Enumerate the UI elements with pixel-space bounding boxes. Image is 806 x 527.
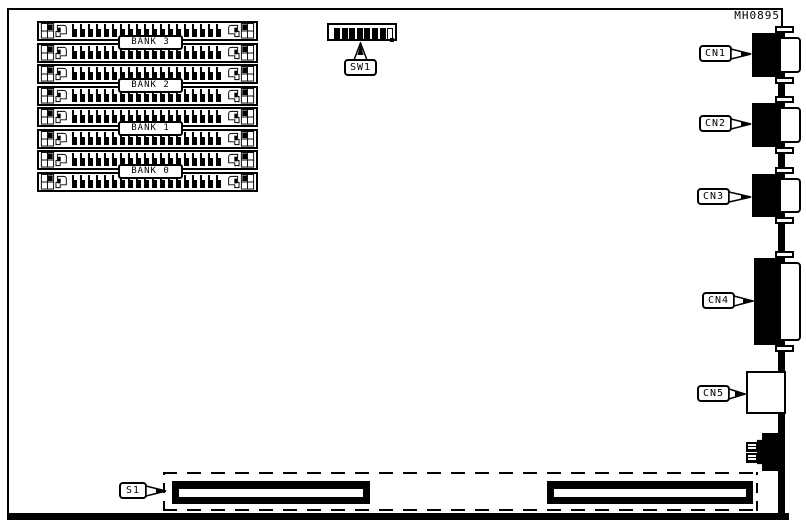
simm-clip-icon — [224, 131, 255, 147]
simm-pin-teeth — [72, 51, 223, 59]
simm-clip-icon — [40, 109, 71, 125]
simm-clip-icon — [224, 174, 255, 190]
dip-switch-position-5 — [364, 28, 370, 39]
simm-clip-icon — [40, 66, 71, 82]
dip-switch-position-2 — [342, 28, 348, 39]
bank-label: BANK 3 — [118, 35, 183, 50]
connector-cn2-shell — [779, 107, 801, 143]
dip-switch-position-1 — [334, 28, 340, 39]
connector-bottom-right-tab — [746, 453, 758, 463]
cn3-pointer-icon — [728, 191, 752, 203]
dip-switch-position-8 — [387, 28, 393, 40]
bank-label: BANK 0 — [118, 164, 183, 179]
connector-cn3-body — [752, 174, 779, 217]
dip-switch-position-7 — [380, 28, 386, 39]
figure-id: MH0895 — [667, 9, 780, 22]
connector-cn3-mount-tab — [775, 217, 794, 224]
board-diagram: MH0895 BANK 3BANK 2BANK 1BANK 0 SW1 CN1C… — [0, 0, 806, 527]
connector-cn5-body — [746, 371, 786, 414]
dip-switch-position-3 — [349, 28, 355, 39]
cn5-pointer-icon — [728, 388, 746, 400]
connector-cn3-shell — [779, 178, 801, 213]
cn5-label: CN5 — [697, 385, 730, 402]
cn1-label: CN1 — [699, 45, 732, 62]
simm-clip-icon — [224, 88, 255, 104]
board-edge-right — [781, 8, 783, 28]
connector-cn4-mount-tab — [775, 251, 794, 258]
simm-clip-icon — [224, 66, 255, 82]
s1-edge-connector-segment — [547, 481, 753, 504]
dip-switch-position-4 — [357, 28, 363, 39]
simm-clip-icon — [224, 45, 255, 61]
connector-cn1-mount-tab — [775, 77, 794, 84]
s1-dashed-border — [756, 472, 758, 511]
connector-bottom-right-body — [757, 433, 785, 471]
simm-clip-icon — [40, 174, 71, 190]
s1-pointer-icon — [145, 485, 168, 497]
connector-cn4-mount-tab — [775, 345, 794, 352]
simm-clip-icon — [224, 152, 255, 168]
s1-contact-stripe — [179, 489, 363, 497]
connector-bottom-right-tab — [746, 442, 758, 452]
cn4-label: CN4 — [702, 292, 735, 309]
connector-cn2-mount-tab — [775, 96, 794, 103]
s1-edge-connector-segment — [172, 481, 370, 504]
dip-switch-sw1 — [327, 23, 397, 41]
simm-clip-icon — [224, 23, 255, 39]
board-edge-bottom — [7, 513, 789, 520]
simm-clip-icon — [40, 23, 71, 39]
simm-clip-icon — [40, 45, 71, 61]
connector-cn2-body — [752, 103, 779, 147]
board-edge-left — [7, 8, 9, 518]
simm-pin-teeth — [72, 180, 223, 188]
simm-pin-teeth — [72, 94, 223, 102]
bank-label: BANK 2 — [118, 78, 183, 93]
cn4-pointer-icon — [733, 295, 754, 307]
s1-label: S1 — [119, 482, 147, 499]
simm-pin-teeth — [72, 137, 223, 145]
connector-cn3-mount-tab — [775, 167, 794, 174]
s1-dashed-border — [163, 472, 758, 474]
simm-clip-icon — [40, 152, 71, 168]
connector-cn2-mount-tab — [775, 147, 794, 154]
bank-label: BANK 1 — [118, 121, 183, 136]
cn2-pointer-icon — [730, 118, 752, 130]
s1-dashed-border — [163, 509, 758, 511]
connector-cn4-shell — [779, 262, 801, 341]
simm-clip-icon — [40, 131, 71, 147]
cn3-label: CN3 — [697, 188, 730, 205]
connector-cn1-mount-tab — [775, 26, 794, 33]
simm-clip-icon — [224, 109, 255, 125]
s1-contact-stripe — [554, 489, 746, 497]
dip-switch-position-6 — [372, 28, 378, 39]
connector-cn1-shell — [779, 37, 801, 73]
connector-cn1-body — [752, 33, 779, 77]
cn1-pointer-icon — [730, 48, 752, 60]
sw1-label: SW1 — [344, 59, 377, 76]
simm-clip-icon — [40, 88, 71, 104]
cn2-label: CN2 — [699, 115, 732, 132]
